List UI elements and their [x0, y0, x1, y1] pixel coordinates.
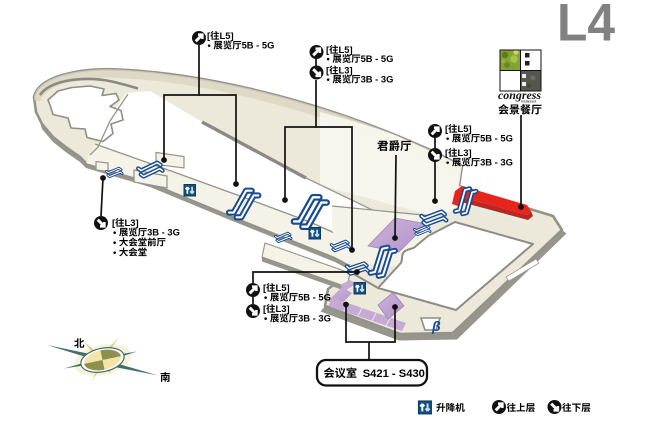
svg-text:•: •: [113, 247, 116, 258]
svg-text:3B - 3G: 3B - 3G: [147, 227, 180, 238]
svg-text:β: β: [431, 318, 441, 334]
svg-text:restaurant: restaurant: [521, 100, 536, 104]
svg-text:•: •: [327, 53, 330, 64]
svg-text:S421 - S430: S421 - S430: [363, 368, 425, 380]
svg-text:L5]: L5]: [276, 282, 290, 293]
svg-text:L4: L4: [557, 0, 615, 53]
svg-text:•: •: [446, 157, 449, 168]
svg-text:L3]: L3]: [339, 65, 353, 76]
svg-text:L3]: L3]: [458, 147, 472, 158]
svg-text:5B - 5G: 5B - 5G: [361, 53, 394, 64]
svg-text:•: •: [208, 40, 211, 51]
svg-text:5B - 5G: 5B - 5G: [298, 292, 331, 303]
svg-text:•: •: [446, 133, 449, 144]
svg-text:5B - 5G: 5B - 5G: [242, 40, 275, 51]
svg-text:3B - 3G: 3B - 3G: [361, 74, 394, 85]
svg-text:3B - 3G: 3B - 3G: [298, 313, 331, 324]
svg-text:3B - 3G: 3B - 3G: [480, 157, 513, 168]
svg-text:L5]: L5]: [458, 123, 472, 134]
svg-text:•: •: [264, 292, 267, 303]
svg-text:5B - 5G: 5B - 5G: [480, 133, 513, 144]
svg-text:•: •: [264, 313, 267, 324]
svg-text:L5]: L5]: [220, 30, 234, 41]
svg-text:•: •: [327, 74, 330, 85]
svg-text:L3]: L3]: [125, 217, 139, 228]
svg-text:L3]: L3]: [276, 303, 290, 314]
svg-text:L5]: L5]: [339, 44, 353, 55]
